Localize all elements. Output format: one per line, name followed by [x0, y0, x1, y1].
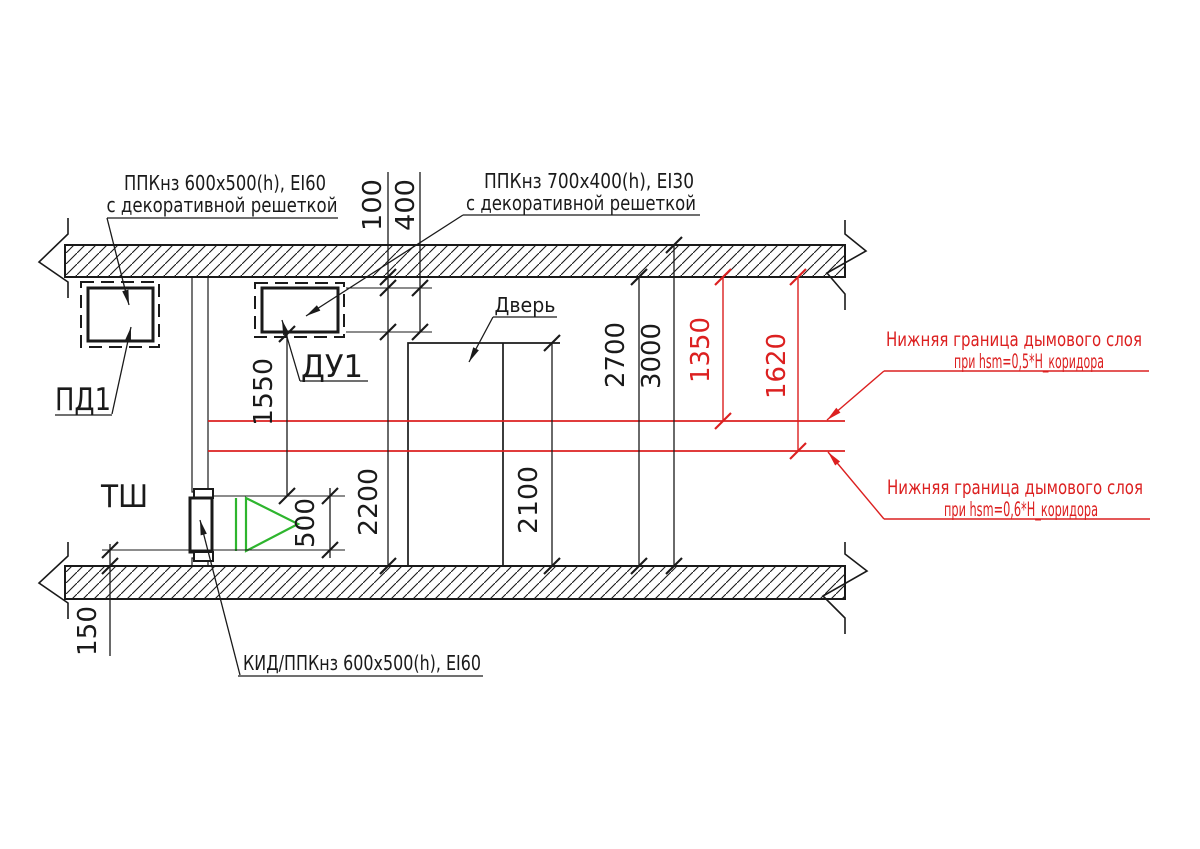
grille-left-spec-line2: с декоративной решеткой	[107, 193, 338, 217]
pd1-label: ПД1	[55, 382, 111, 418]
shaft-wall	[192, 277, 208, 566]
dim-500: 500	[291, 498, 321, 548]
floor-slab	[65, 566, 845, 599]
dim-1550: 1550	[249, 358, 279, 426]
grille-right-spec-line2: с декоративной решеткой	[466, 191, 696, 215]
door-label: Дверь	[495, 293, 556, 317]
airflow-symbol	[236, 498, 298, 551]
smoke-upper-note-line2: при hsm=0,5*H_коридора	[954, 350, 1104, 373]
dim-150: 150	[73, 606, 103, 656]
dimension-ticks-red	[715, 269, 806, 459]
smoke-lower-note-line1: Нижняя граница дымового слоя	[887, 476, 1143, 499]
dim-2200: 2200	[354, 468, 384, 536]
dim-2100: 2100	[514, 466, 544, 534]
pd1-grille	[81, 282, 159, 347]
corridor-section-drawing: ППКнз 600х500(h), EI60 с декоративной ре…	[0, 0, 1200, 849]
dim-2700: 2700	[601, 322, 631, 388]
leader-lines	[55, 215, 1150, 676]
smoke-upper-note-line1: Нижняя граница дымового слоя	[886, 328, 1142, 351]
tsh-label: ТШ	[100, 479, 148, 515]
grille-left-spec-line1: ППКнз 600х500(h), EI60	[124, 171, 326, 195]
drawing-canvas: ППКнз 600х500(h), EI60 с декоративной ре…	[0, 0, 1200, 849]
dim-1350: 1350	[686, 317, 716, 383]
du1-label: ДУ1	[301, 349, 363, 385]
dim-1620: 1620	[762, 333, 792, 399]
du1-grille	[255, 283, 344, 337]
dim-3000: 3000	[637, 323, 667, 389]
grille-right-spec-line1: ППКнз 700х400(h), EI30	[484, 169, 694, 193]
dim-400: 400	[391, 179, 421, 231]
kid-spec-label: КИД/ППКнз 600х500(h), EI60	[243, 651, 481, 675]
dim-100: 100	[358, 179, 388, 231]
smoke-lower-note-line2: при hsm=0,6*H_коридора	[944, 498, 1098, 521]
